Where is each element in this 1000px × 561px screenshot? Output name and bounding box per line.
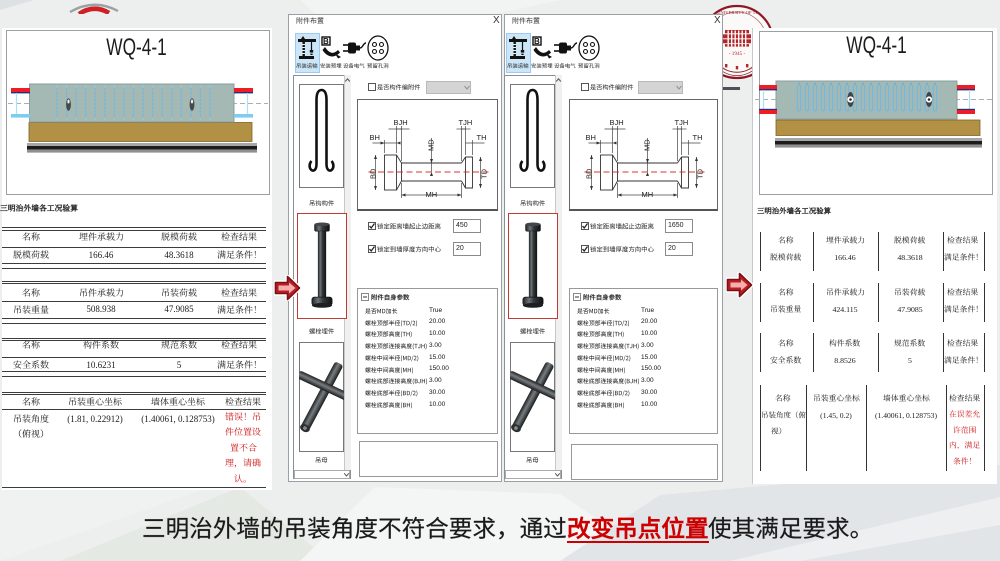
svg-text:BD: BD (369, 168, 378, 179)
svg-text:MH: MH (642, 190, 654, 199)
svg-text:TJH: TJH (459, 118, 473, 127)
svg-text:MH: MH (426, 190, 438, 199)
svg-text:UNIVERSITY OF TI: UNIVERSITY OF TI (717, 10, 757, 15)
svg-text:TH: TH (693, 133, 703, 142)
svg-text:TD: TD (696, 168, 705, 179)
svg-text:- 1945 -: - 1945 - (729, 51, 746, 57)
svg-text:B: B (323, 37, 329, 46)
svg-text:BD: BD (585, 168, 594, 179)
svg-text:MD: MD (427, 139, 436, 151)
svg-text:TJH: TJH (675, 118, 689, 127)
svg-text:BJH: BJH (394, 118, 408, 127)
svg-text:MD: MD (643, 139, 652, 151)
svg-text:TD: TD (480, 168, 489, 179)
svg-text:TH: TH (477, 133, 487, 142)
svg-text:B: B (534, 37, 540, 46)
svg-text:BJH: BJH (610, 118, 624, 127)
svg-text:BH: BH (370, 133, 380, 142)
svg-text:BH: BH (586, 133, 596, 142)
